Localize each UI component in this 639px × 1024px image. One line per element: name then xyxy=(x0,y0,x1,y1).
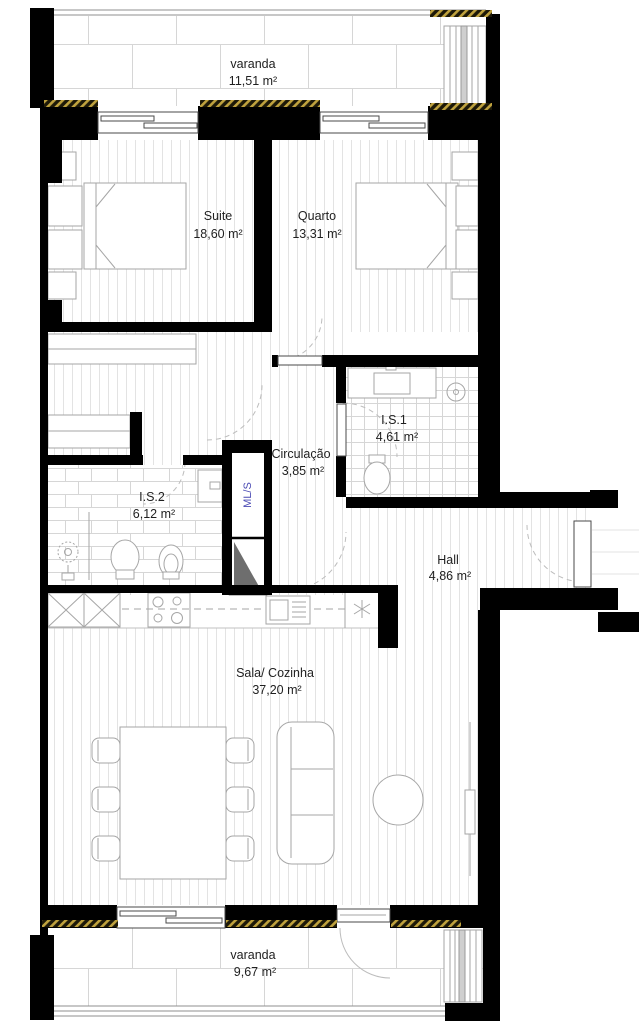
screen-south xyxy=(444,930,482,1002)
stair-landing-lines xyxy=(592,530,639,574)
service-areas xyxy=(230,450,266,594)
floor-plan-svg: varanda 11,51 m² Suite 18,60 m² Quarto 1… xyxy=(0,0,639,1024)
drain-symbol xyxy=(354,600,370,618)
stove xyxy=(148,593,190,627)
room-area: 9,67 m² xyxy=(234,965,276,979)
bed-suite xyxy=(84,183,186,269)
railing-south xyxy=(40,1006,462,1016)
dining-table xyxy=(120,727,226,879)
room-name: Sala/ Cozinha xyxy=(236,666,314,680)
floor-plan-page: varanda 11,51 m² Suite 18,60 m² Quarto 1… xyxy=(0,0,639,1024)
wardrobe-suite-1 xyxy=(48,334,196,364)
window-sala xyxy=(117,907,225,928)
room-name: I.S.1 xyxy=(381,413,407,427)
nightstand-quarto-2 xyxy=(456,230,478,269)
door-leaf-quarto xyxy=(278,356,322,365)
vanity-is1 xyxy=(348,363,436,398)
room-area: 4,86 m² xyxy=(429,569,471,583)
bidet-is2 xyxy=(159,545,183,579)
door-leaf-is1 xyxy=(337,404,346,456)
room-area: 18,60 m² xyxy=(193,227,242,241)
insulation-strip xyxy=(42,920,118,927)
room-area: 13,31 m² xyxy=(292,227,341,241)
door-leaf-entrance xyxy=(574,521,591,587)
nightstand-suite-1 xyxy=(48,186,82,226)
room-name: Circulação xyxy=(271,447,330,461)
floor-hall-sala-opening xyxy=(398,588,480,628)
railing-north xyxy=(54,10,486,15)
water-heater-is2 xyxy=(198,470,222,502)
cabinet-quarto-top xyxy=(452,152,478,180)
insulation-strip xyxy=(44,100,98,107)
insulation-strip xyxy=(391,920,461,927)
insulation-strip xyxy=(430,103,492,110)
room-name: Quarto xyxy=(298,209,336,223)
door-leaf-varanda-sul xyxy=(337,909,390,922)
kitchen-sink xyxy=(266,596,310,624)
room-area: 4,61 m² xyxy=(376,430,418,444)
insulation-strip xyxy=(430,10,492,17)
laundry-closet-label: ML/S xyxy=(242,482,254,508)
kitchen-cabinets xyxy=(48,593,120,627)
room-name: I.S.2 xyxy=(139,490,165,504)
window-suite xyxy=(98,112,198,133)
bed-quarto xyxy=(356,183,458,269)
room-area: 6,12 m² xyxy=(133,507,175,521)
nightstand-suite-2 xyxy=(48,230,82,269)
nightstand-quarto-1 xyxy=(456,186,478,226)
room-name: Hall xyxy=(437,553,459,567)
room-name: varanda xyxy=(230,57,275,71)
window-quarto xyxy=(320,112,428,133)
screen-north xyxy=(444,26,486,104)
sofa xyxy=(277,722,334,864)
cabinet-suite-bottom xyxy=(48,272,76,299)
insulation-strip xyxy=(226,920,337,927)
room-area: 3,85 m² xyxy=(282,464,324,478)
room-name: Suite xyxy=(204,209,233,223)
room-area: 37,20 m² xyxy=(252,683,301,697)
insulation-strip xyxy=(200,100,320,107)
coffee-table xyxy=(373,775,423,825)
dining-chairs-left xyxy=(92,738,120,861)
cabinet-quarto-bottom xyxy=(452,272,478,299)
dining-chairs-right xyxy=(226,738,254,861)
room-name: varanda xyxy=(230,948,275,962)
wardrobe-suite-2 xyxy=(48,415,130,448)
room-area: 11,51 m² xyxy=(229,74,277,88)
